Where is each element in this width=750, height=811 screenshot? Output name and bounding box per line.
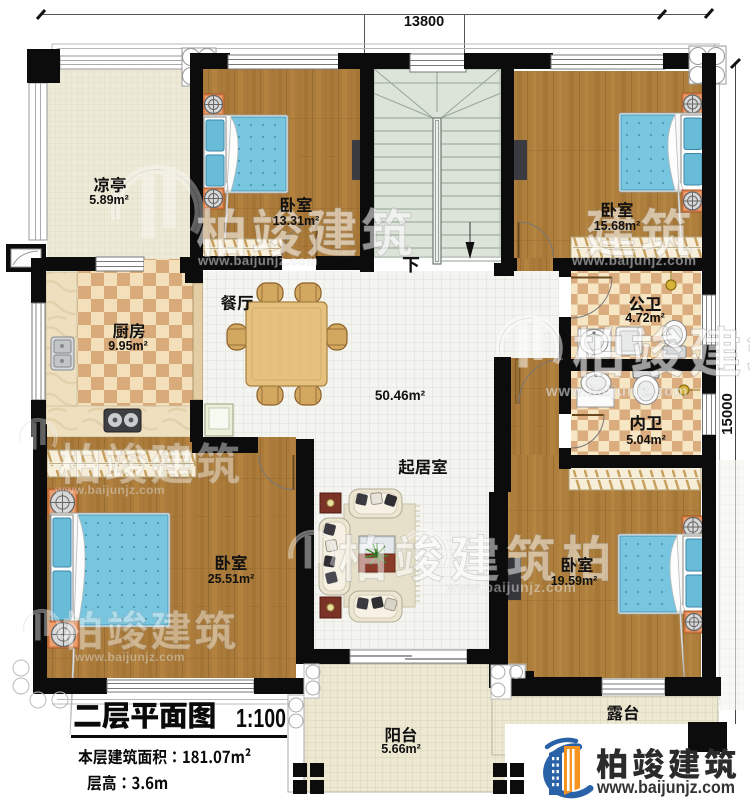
svg-text:www.baijunjz.com: www.baijunjz.com	[54, 483, 165, 497]
svg-text:www.baijunjz.com: www.baijunjz.com	[74, 650, 185, 664]
svg-text:15000: 15000	[719, 393, 736, 435]
svg-text:5.66m²: 5.66m²	[381, 742, 421, 756]
svg-text:5.04m²: 5.04m²	[626, 433, 666, 447]
svg-text:25.51m²: 25.51m²	[208, 572, 255, 586]
svg-text:13.31m²: 13.31m²	[273, 214, 320, 228]
svg-text:1:100: 1:100	[236, 703, 286, 733]
svg-text:www.baijunjz.com: www.baijunjz.com	[197, 253, 318, 268]
svg-text:4.72m²: 4.72m²	[625, 311, 665, 325]
svg-text:13800: 13800	[404, 14, 444, 30]
svg-text:9.95m²: 9.95m²	[108, 339, 148, 353]
svg-text:www.baijunjz.com: www.baijunjz.com	[571, 253, 697, 268]
svg-text:19.59m²: 19.59m²	[551, 574, 598, 588]
svg-text:50.46m²: 50.46m²	[375, 388, 426, 403]
svg-text:5.89m²: 5.89m²	[89, 193, 129, 207]
svg-text:www.baijunjz.com: www.baijunjz.com	[596, 777, 735, 797]
svg-text:15.68m²: 15.68m²	[594, 219, 641, 233]
svg-text:www.baijunjz.com: www.baijunjz.com	[545, 383, 688, 400]
